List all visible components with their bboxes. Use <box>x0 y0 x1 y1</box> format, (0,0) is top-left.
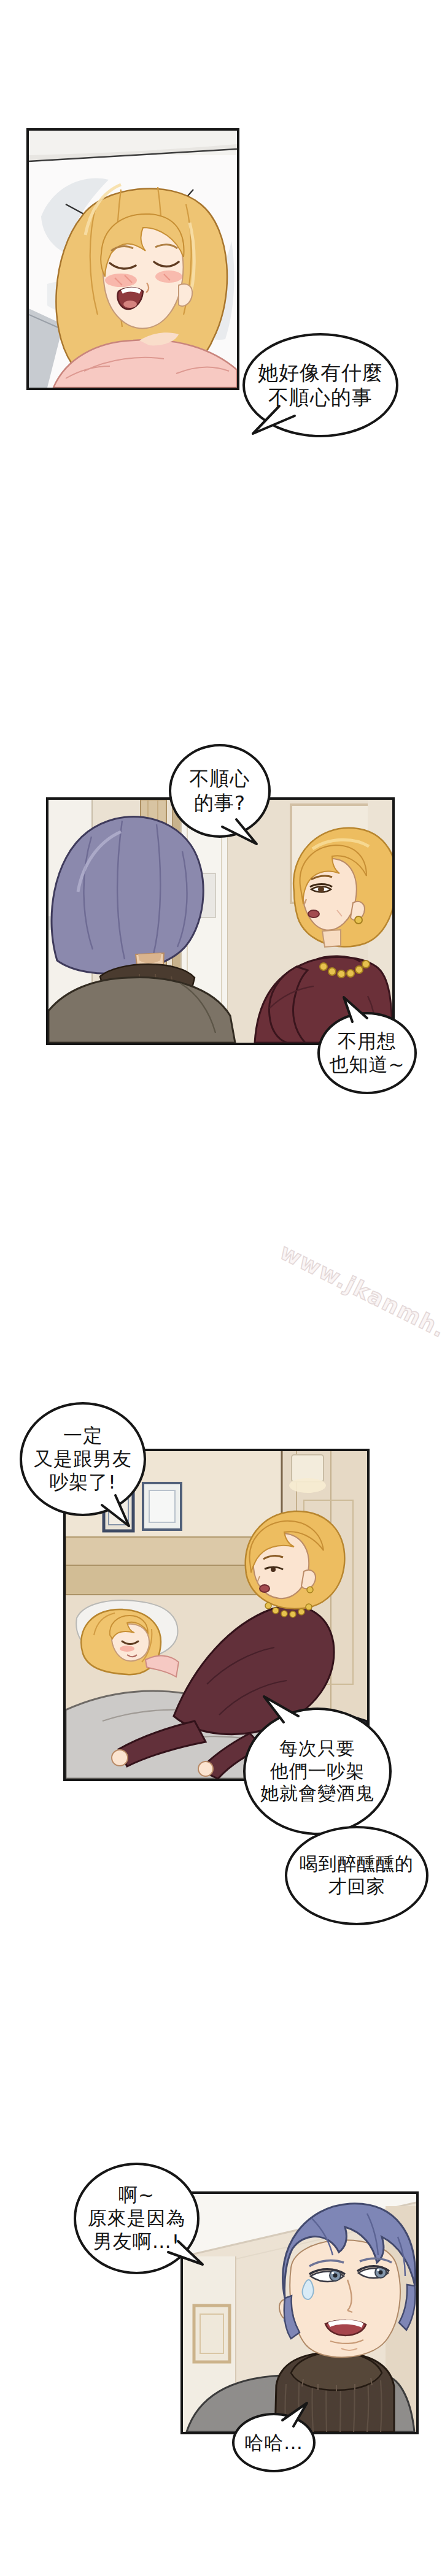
panel-1 <box>26 128 239 390</box>
speech-text: 又是跟男友 <box>34 1447 132 1471</box>
speech-bubble-6: 喝到醉醺醺的 才回家 <box>285 1826 428 1925</box>
comic-page: www.jkanmh.top 她好像有什麼 不順心的事 不順心 的事? 不用想 … <box>0 0 442 2576</box>
speech-text: 的事? <box>194 791 246 815</box>
speech-text: 不順心 <box>190 767 250 791</box>
bubble-4-tail <box>97 1489 135 1531</box>
bubble-3-tail <box>336 992 376 1028</box>
speech-text: 每次只要 <box>279 1738 355 1760</box>
speech-text: 哈哈… <box>244 2431 303 2455</box>
panel-4-artwork <box>183 2194 416 2432</box>
bubble-8-tail <box>275 2397 313 2432</box>
bubble-2-tail <box>216 815 265 849</box>
bubble-5-tail <box>257 1690 303 1728</box>
speech-text: 也知道~ <box>330 1053 405 1076</box>
speech-text: 啊~ <box>118 2183 155 2207</box>
speech-text: 原來是因為 <box>88 2207 186 2230</box>
speech-text: 才回家 <box>328 1876 386 1898</box>
speech-text: 他們一吵架 <box>270 1760 365 1783</box>
bubble-1-tail <box>244 399 306 439</box>
speech-text: 喝到醉醺醺的 <box>300 1853 414 1876</box>
speech-text: 一定 <box>63 1424 103 1447</box>
panel-1-artwork <box>29 131 237 388</box>
site-watermark: www.jkanmh.top <box>276 1239 442 1363</box>
speech-text: 不用想 <box>338 1030 397 1053</box>
bubble-7-tail <box>161 2231 209 2272</box>
speech-text: 她就會變酒鬼 <box>260 1782 374 1805</box>
speech-text: 她好像有什麼 <box>258 361 383 385</box>
